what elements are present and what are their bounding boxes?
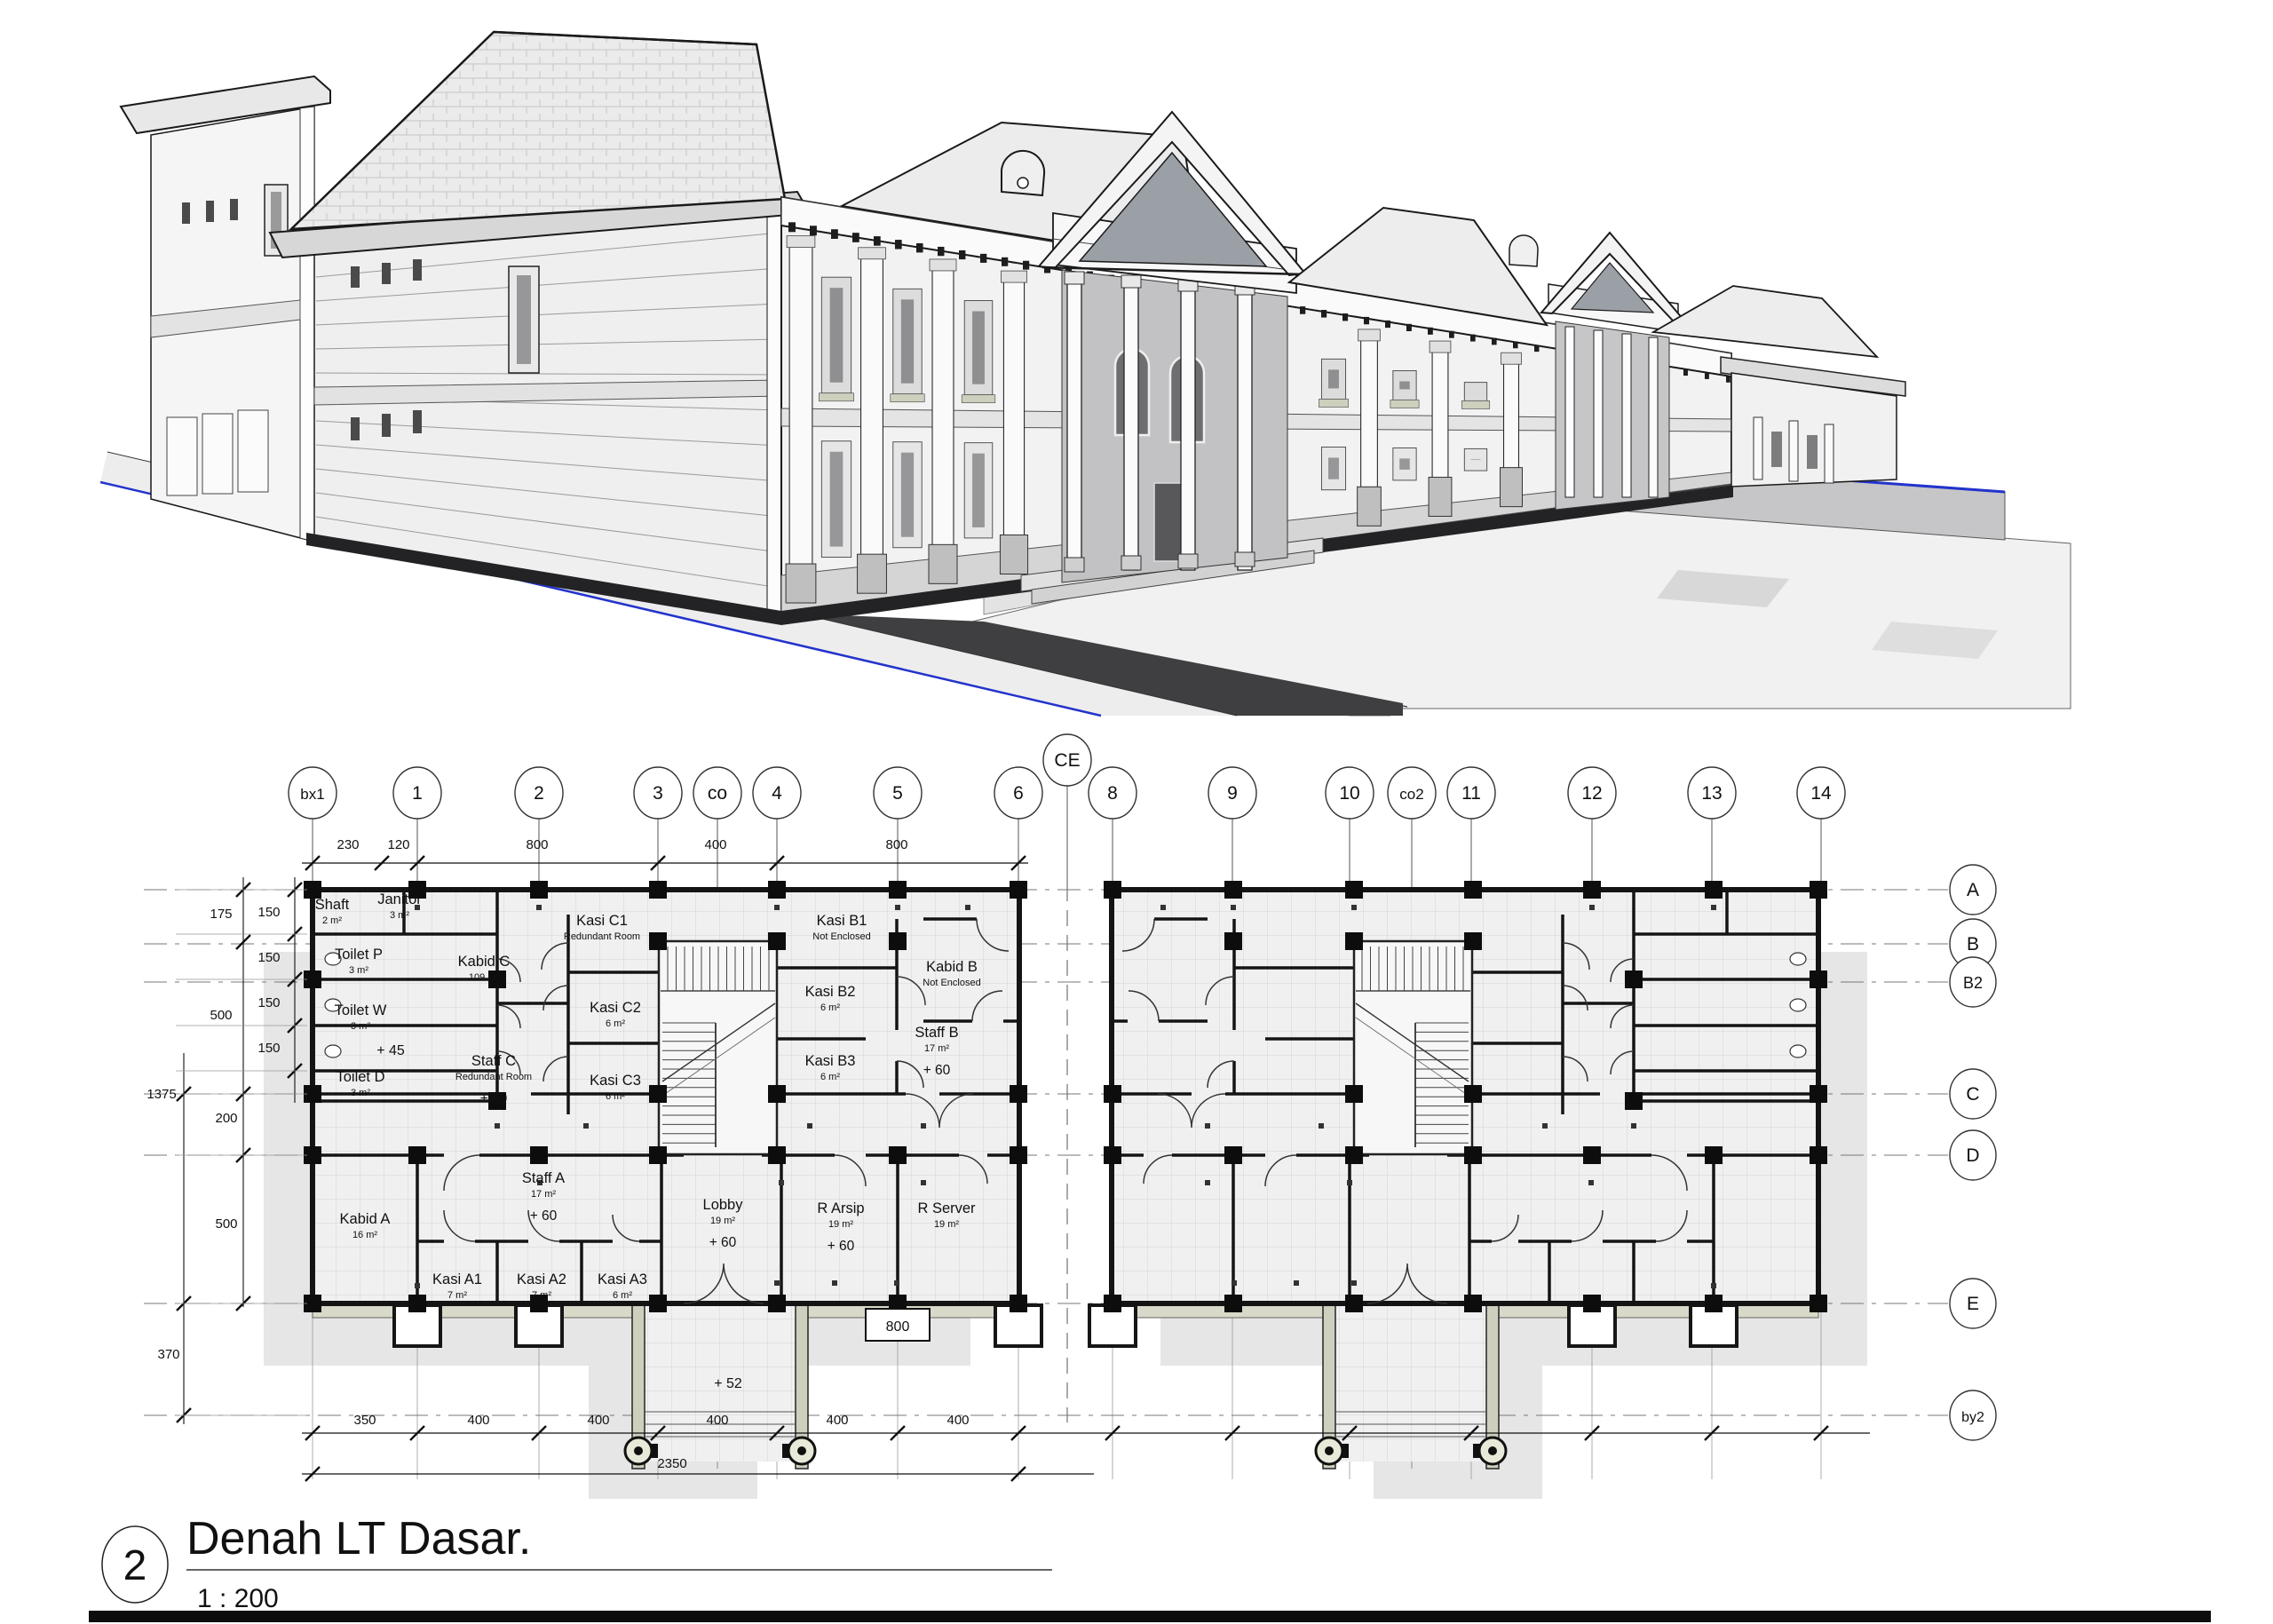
column-marker [889, 932, 907, 950]
room-sublabel: 109 m² [469, 972, 500, 983]
room-sublabel: 19 m² [710, 1216, 735, 1226]
column [1825, 424, 1833, 483]
room-label-lobby: Lobby [703, 1197, 744, 1213]
grid-bubble-label: 4 [772, 783, 782, 804]
side-window-slot [351, 417, 360, 440]
window-glass [1328, 457, 1339, 479]
dentil [1300, 306, 1305, 314]
room-sublabel: 19 m² [828, 1219, 853, 1230]
pilaster [932, 261, 954, 580]
column-capital [1065, 272, 1084, 284]
grid-bubble-label: 2 [534, 783, 544, 804]
column-marker [530, 881, 548, 899]
pilaster [1003, 273, 1024, 570]
pilaster-base [1501, 468, 1523, 507]
annex-door-panel [167, 417, 197, 495]
dentil [788, 222, 796, 232]
column [1594, 330, 1603, 497]
grid-bubble-label: 6 [1013, 783, 1024, 804]
window-glass [1399, 458, 1410, 469]
ceiling-fixture [774, 1280, 780, 1286]
pilaster-capital [930, 259, 956, 271]
dim-text: 150 [257, 995, 280, 1010]
grid-bubble-label: B2 [1963, 974, 1983, 992]
dim-text: 400 [826, 1413, 848, 1428]
room-label-kasi-a2: Kasi A2 [517, 1271, 566, 1287]
window-slot [1771, 432, 1782, 467]
ceiling-fixture [894, 1280, 899, 1286]
room-sublabel: 6 m² [606, 1018, 625, 1029]
dentil [874, 236, 881, 246]
dentil [1470, 335, 1476, 342]
grid-bubble-label: A [1967, 880, 1979, 900]
room-label-kabid-c: Kabid C [458, 954, 511, 970]
pilaster-capital [1001, 271, 1026, 282]
room-label-staff-a: Staff A [522, 1170, 565, 1186]
pilaster [789, 238, 812, 599]
column-marker [1010, 1146, 1027, 1164]
dentil [1385, 321, 1390, 328]
level-mark: + 45 [376, 1043, 405, 1058]
column-marker [768, 881, 786, 899]
building-plan-right [1089, 881, 1827, 1469]
window-glass [972, 454, 985, 527]
annex-window-slot [206, 201, 214, 222]
column [1181, 289, 1195, 570]
dentil [810, 226, 817, 235]
pilaster-base [786, 564, 816, 603]
grid-bubble-label: E [1967, 1294, 1979, 1314]
dim-text: 1375 [147, 1087, 176, 1102]
dentil [1428, 328, 1433, 335]
column-capital [1121, 275, 1141, 288]
column-marker [649, 1085, 667, 1103]
column [1067, 282, 1081, 568]
room-sublabel: 2 m² [322, 915, 342, 926]
dentil [1683, 369, 1688, 376]
room-sublabel: 17 m² [531, 1189, 556, 1200]
dentil [1321, 310, 1327, 318]
room-label-kabid-a: Kabid A [340, 1211, 391, 1227]
dentil [1492, 338, 1497, 345]
annex-door-panel [238, 410, 268, 492]
roof-arch-ornament [1509, 235, 1538, 266]
column-marker [889, 1146, 907, 1164]
window-sill [962, 395, 995, 403]
room-label-kasi-c2: Kasi C2 [590, 1000, 641, 1016]
ceiling-fixture [495, 1123, 500, 1129]
side-window-slot [351, 266, 360, 288]
column-marker [768, 932, 786, 950]
dentil [1002, 257, 1008, 266]
floor-plan: bx1123co456CE8910co211121314ABB2CDEby2 [144, 734, 1996, 1499]
dentil [1023, 261, 1029, 270]
window-glass [1328, 369, 1339, 388]
column [1124, 286, 1138, 570]
grid-bubble-label: co2 [1399, 786, 1423, 803]
room-level: + 60 [530, 1208, 558, 1224]
dentil [1705, 373, 1709, 379]
side-window-slot [413, 410, 422, 433]
pilaster-capital [787, 236, 815, 248]
column [1754, 417, 1762, 479]
room-sublabel: 6 m² [820, 1002, 840, 1013]
room-sublabel: 7 m² [447, 1290, 467, 1301]
column-marker [768, 1295, 786, 1312]
dentil [852, 233, 859, 242]
room-label-staff-c: Staff C [471, 1053, 516, 1069]
window-glass [972, 312, 985, 384]
room-label-kasi-c3: Kasi C3 [590, 1073, 641, 1089]
dentil [831, 229, 838, 239]
room-level: + 60 [709, 1235, 737, 1250]
dim-text: 800 [885, 837, 907, 852]
dim-text: 800 [526, 837, 548, 852]
column [1238, 293, 1252, 570]
room-label-toilet-w: Toilet W [335, 1002, 387, 1018]
grid-bubble-label: C [1966, 1084, 1979, 1105]
column [1565, 327, 1574, 497]
pilaster-base [929, 544, 957, 583]
wc-fixture [325, 1045, 341, 1058]
view-scale: 1 : 200 [197, 1584, 279, 1613]
side-window-slot [382, 263, 391, 284]
grid-bubble-label: by2 [1961, 1410, 1984, 1425]
grid-bubble-label: 3 [653, 783, 663, 804]
dentil [1364, 317, 1369, 324]
grid-bubble-label: 10 [1339, 783, 1359, 804]
dim-text: 500 [210, 1008, 232, 1023]
dim-text: 150 [257, 905, 280, 920]
grid-bubble-label: 1 [412, 783, 423, 804]
room-label-r-server: R Server [917, 1200, 976, 1216]
room-sublabel: 16 m² [352, 1230, 377, 1240]
porch-column-core [634, 1446, 643, 1455]
ceiling-fixture [921, 1123, 926, 1129]
room-sublabel: 6 m² [820, 1072, 840, 1082]
dim-text: 200 [215, 1111, 237, 1126]
column [1622, 334, 1631, 497]
window-glass [901, 453, 914, 537]
room-sublabel: 3 m² [349, 965, 368, 976]
ceiling-fixture [774, 905, 780, 910]
dentil [1534, 345, 1539, 352]
room-level: + 60 [480, 1091, 508, 1106]
dim-text: 350 [353, 1413, 376, 1428]
dentil [895, 240, 902, 249]
dim-text: 400 [467, 1413, 489, 1428]
grid-bubble-label: 13 [1701, 783, 1722, 804]
pilaster-capital [859, 248, 886, 259]
dentil [959, 250, 965, 259]
window-glass [830, 288, 843, 383]
side-window-slot [382, 414, 391, 437]
dentil [1406, 324, 1412, 331]
grid-bubble-label: bx1 [300, 786, 324, 803]
view-title: Denah LT Dasar. [186, 1513, 531, 1565]
room-label-kasi-c1: Kasi C1 [576, 913, 628, 929]
dim-text: 400 [706, 1413, 728, 1428]
room-label-staff-b: Staff B [915, 1025, 958, 1041]
annex-window-slot [182, 202, 190, 224]
column-marker [649, 881, 667, 899]
room-sublabel: 3 m² [390, 910, 409, 921]
dentil [1726, 376, 1730, 383]
ceiling-fixture [832, 1280, 837, 1286]
room-label-kasi-a3: Kasi A3 [598, 1271, 647, 1287]
grid-bubble-label: 12 [1581, 783, 1602, 804]
room-label-r-arsip: R Arsip [817, 1200, 864, 1216]
pilaster-base [1429, 477, 1452, 516]
room-level: + 60 [828, 1239, 855, 1254]
grid-bubble-label: 9 [1227, 783, 1238, 804]
dim-text: 230 [337, 837, 359, 852]
column-base [1065, 558, 1084, 572]
grid-bubble-label: 11 [1461, 783, 1481, 804]
column-marker [649, 1295, 667, 1312]
column-marker [649, 932, 667, 950]
room-sublabel: 6 m² [606, 1091, 625, 1102]
dentil [1342, 313, 1348, 321]
ceiling-fixture [583, 1123, 589, 1129]
room-sublabel: 19 m² [934, 1219, 959, 1230]
view-number: 2 [123, 1542, 147, 1589]
window-sill [819, 393, 853, 401]
column-marker [1010, 881, 1027, 899]
room-label-janitor: Janitor [377, 891, 422, 907]
pilaster-base [1358, 487, 1382, 526]
side-window-glass [517, 275, 531, 364]
ceiling-fixture [807, 1123, 812, 1129]
sheet-border-bar [89, 1611, 2211, 1622]
column-base [1178, 554, 1198, 568]
room-level: + 60 [923, 1063, 951, 1078]
level-mark: + 52 [714, 1376, 742, 1391]
window-glass [830, 452, 843, 547]
dentil [916, 243, 923, 252]
dim-text: 400 [587, 1413, 609, 1428]
drawing-sheet: bx1123co456CE8910co211121314ABB2CDEby2 [0, 0, 2273, 1624]
column-marker [649, 1146, 667, 1164]
room-label-toilet-p: Toilet P [335, 947, 383, 963]
window-glass [1399, 381, 1410, 389]
column-marker [408, 1295, 426, 1312]
grid-bubble-label: D [1966, 1145, 1979, 1166]
porch-column-core [797, 1446, 806, 1455]
window-bay-upper [1464, 383, 1486, 401]
dentil [1449, 331, 1454, 338]
annex-corner-pilaster [300, 107, 314, 542]
dim-text: 150 [257, 950, 280, 965]
column [1649, 337, 1658, 497]
pilaster [861, 250, 883, 590]
pilaster-base [1000, 535, 1027, 574]
grid-bubble-label: co [708, 783, 727, 804]
annex-window-slot [230, 199, 238, 220]
room-sublabel: 17 m² [924, 1043, 949, 1054]
column-marker [408, 1146, 426, 1164]
window-sill [1319, 399, 1348, 407]
window-glass [1470, 459, 1480, 460]
ceiling-fixture [921, 1180, 926, 1185]
dim-text: 500 [215, 1216, 237, 1232]
pilaster-capital [1358, 329, 1381, 341]
perspective-3d-view [100, 32, 2071, 716]
dim-text: 370 [157, 1347, 179, 1362]
dim-text-total: 2350 [657, 1456, 686, 1471]
ceiling-fixture [779, 1180, 784, 1185]
side-window-slot [413, 259, 422, 281]
room-label-kasi-b2: Kasi B2 [805, 984, 856, 1000]
window-sill [1461, 400, 1489, 408]
room-sublabel: Redundant Room [455, 1072, 532, 1082]
ceiling-fixture [536, 905, 542, 910]
dim-text: 175 [210, 907, 232, 922]
grid-bubble-label: B [1967, 934, 1979, 955]
room-label-shaft: Shaft [315, 897, 350, 913]
ceiling-fixture [895, 905, 900, 910]
ceiling-fixture [965, 905, 970, 910]
room-sublabel: Not Enclosed [812, 931, 870, 942]
pilaster-base [858, 554, 887, 593]
room-sublabel: 3 m² [351, 1088, 370, 1098]
grid-bubble-label: 14 [1810, 783, 1832, 804]
dentil [938, 247, 944, 256]
dentil [1513, 342, 1518, 349]
pilaster-capital [1501, 353, 1522, 364]
window-glass [901, 299, 914, 383]
dentil [980, 254, 986, 263]
pilaster-capital [1430, 341, 1451, 353]
roof-ornament-hole [1018, 178, 1028, 188]
window-sill [1390, 400, 1419, 408]
column-marker [530, 1146, 548, 1164]
dim-text: 400 [704, 837, 726, 852]
room-label-kasi-b3: Kasi B3 [805, 1053, 856, 1069]
hip-roof-main [291, 32, 785, 229]
room-sublabel: Redundant Room [564, 931, 640, 942]
grid-bubble-label: 8 [1107, 783, 1118, 804]
column [1789, 421, 1798, 481]
room-sublabel: 7 m² [532, 1290, 551, 1301]
dim-text: 400 [946, 1413, 969, 1428]
annex-door-panel [202, 414, 233, 494]
room-sublabel: 6 m² [613, 1290, 632, 1301]
grid-bubble-label: 5 [892, 783, 903, 804]
dim-text: 150 [257, 1041, 280, 1056]
column-marker [889, 881, 907, 899]
title-block: 2 Denah LT Dasar. 1 : 200 [89, 1513, 2211, 1622]
column-marker [768, 1085, 786, 1103]
room-sublabel: Not Enclosed [923, 978, 980, 988]
dim-box-text: 800 [886, 1319, 910, 1335]
room-label-kasi-b1: Kasi B1 [817, 913, 867, 929]
window-sill [891, 394, 924, 402]
room-sublabel: 3 m² [351, 1021, 370, 1032]
window-slot [1807, 435, 1818, 469]
column-marker [1010, 1085, 1027, 1103]
corner-pilaster [767, 194, 781, 613]
column-base [1235, 552, 1255, 566]
column-marker [768, 1146, 786, 1164]
dim-text: 120 [387, 837, 409, 852]
ceiling-fixture [415, 1283, 420, 1288]
room-label-toilet-d: Toilet D [336, 1069, 384, 1085]
grid-bubble-label: CE [1054, 750, 1080, 771]
column-marker [1010, 1295, 1027, 1312]
room-label-kasi-a1: Kasi A1 [432, 1271, 482, 1287]
room-label-kabid-b: Kabid B [926, 959, 978, 975]
column-base [1121, 556, 1141, 570]
